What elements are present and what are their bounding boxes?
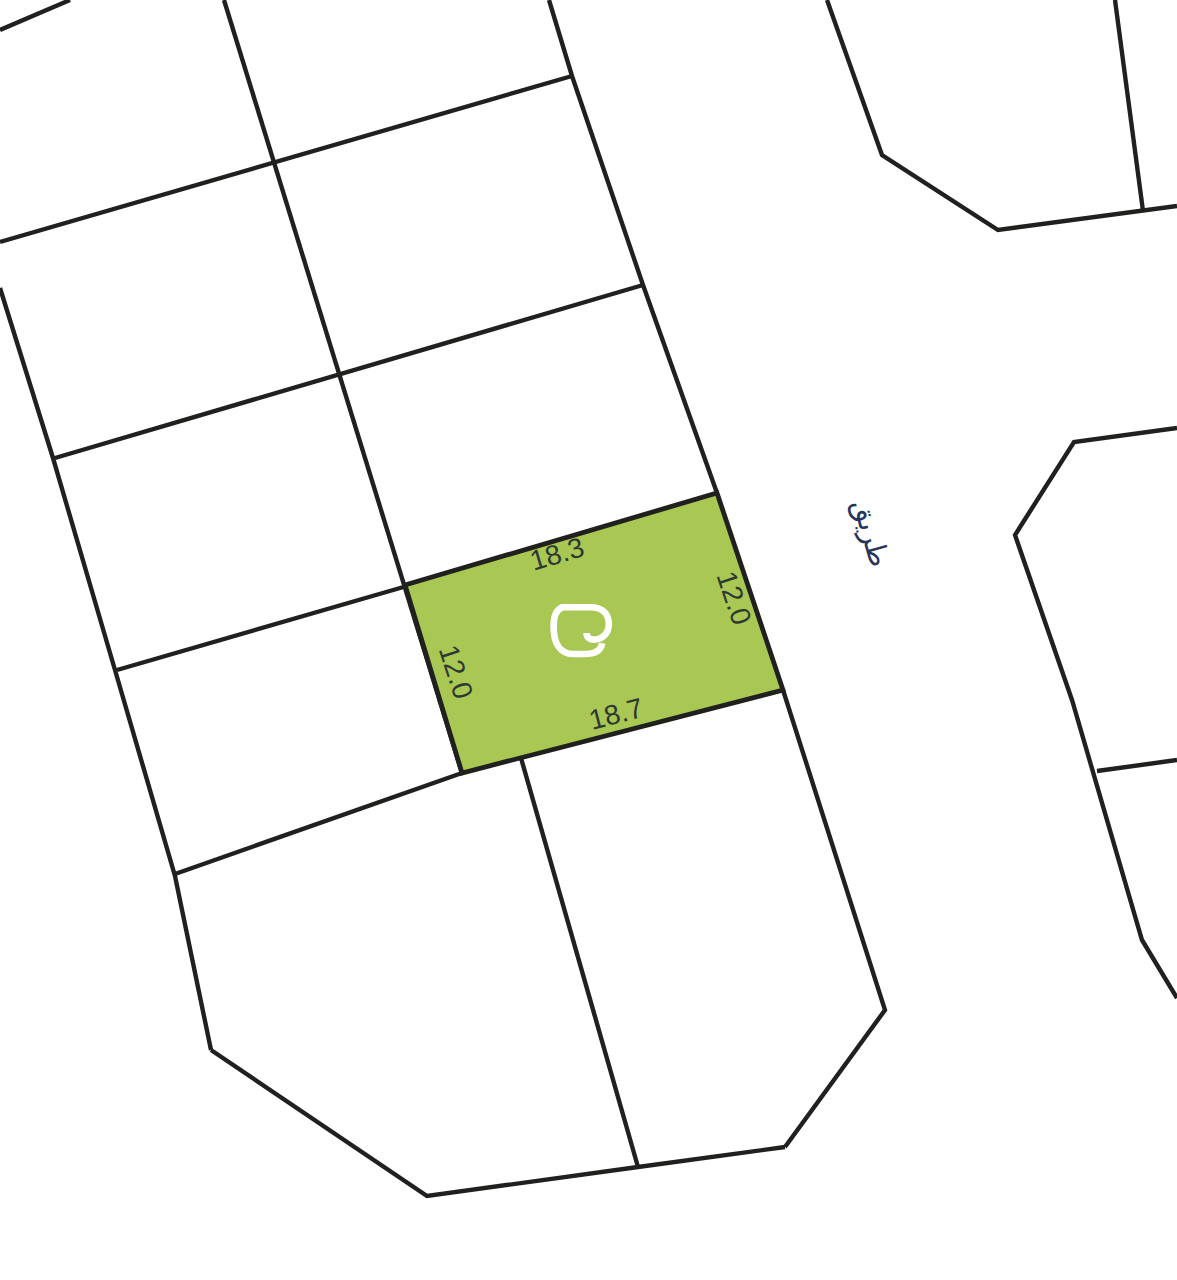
row-divider-3 bbox=[117, 586, 407, 670]
east-parcel-boundary bbox=[1015, 428, 1177, 998]
northeast-parcel-divider bbox=[1115, 0, 1143, 211]
row-divider-2 bbox=[55, 285, 643, 458]
bottom-parcel-divider bbox=[521, 758, 638, 1167]
northeast-parcel-boundary bbox=[827, 0, 1177, 230]
west-boundary bbox=[0, 288, 211, 1050]
road-west-edge-upper bbox=[549, 0, 717, 493]
row-divider-1 bbox=[0, 76, 572, 242]
south-boundary bbox=[211, 1050, 785, 1196]
map-viewport[interactable]: 18.3 12.0 12.0 18.7 طريق bbox=[0, 0, 1177, 1280]
road-west-edge-lower bbox=[783, 690, 885, 1147]
road-name-label: طريق bbox=[846, 495, 897, 570]
row-divider-4 bbox=[175, 773, 462, 874]
highlighted-parcel-group: 18.3 12.0 12.0 18.7 bbox=[405, 493, 783, 773]
top-left-corner-cut bbox=[0, 0, 70, 30]
cadastral-map-canvas[interactable]: 18.3 12.0 12.0 18.7 طريق bbox=[0, 0, 1177, 1280]
east-parcel-divider bbox=[1097, 760, 1177, 771]
